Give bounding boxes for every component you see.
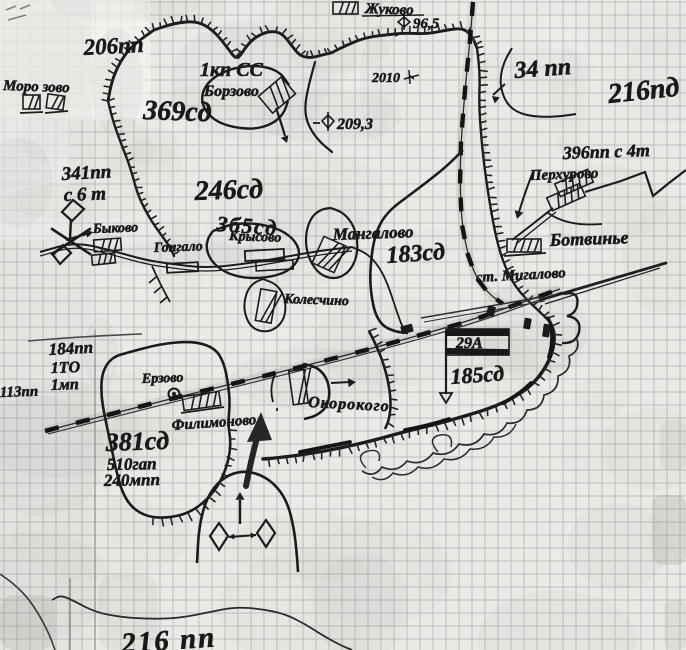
svg-text:29А: 29А (455, 335, 483, 352)
svg-text:96,5: 96,5 (413, 16, 440, 32)
svg-text:396пп с 4т: 396пп с 4т (561, 140, 650, 163)
svg-text:Мангалово: Мангалово (331, 222, 413, 244)
svg-text:34 пп: 34 пп (513, 54, 572, 84)
svg-text:240мпп: 240мпп (103, 470, 160, 490)
svg-text:Ботвинье: Ботвинье (548, 227, 628, 250)
svg-text:184пп: 184пп (48, 338, 93, 359)
svg-text:Гонгало: Гонгало (153, 239, 203, 256)
svg-text:206пп: 206пп (82, 32, 144, 60)
svg-text:1ТО: 1ТО (51, 359, 81, 377)
svg-text:Крысово: Крысово (228, 229, 282, 246)
svg-text:341пп: 341пп (60, 161, 112, 185)
svg-text:113пп: 113пп (0, 384, 38, 401)
svg-text:с 6 т: с 6 т (63, 184, 106, 206)
svg-text:183сд: 183сд (386, 239, 446, 269)
svg-text:2010: 2010 (371, 71, 400, 86)
svg-text:Быково: Быково (92, 220, 139, 237)
svg-text:381сд: 381сд (104, 426, 170, 457)
svg-text:246сд: 246сд (193, 174, 263, 207)
svg-text:209,3: 209,3 (336, 116, 373, 133)
svg-text:Перхурово: Перхурово (529, 166, 599, 184)
svg-text:185сд: 185сд (450, 360, 505, 389)
svg-text:Колесчино: Колесчино (283, 292, 349, 309)
svg-text:1мп: 1мп (51, 376, 80, 394)
svg-text:Моро зово: Моро зово (2, 78, 70, 96)
svg-text:Ерзово: Ерзово (141, 371, 184, 387)
